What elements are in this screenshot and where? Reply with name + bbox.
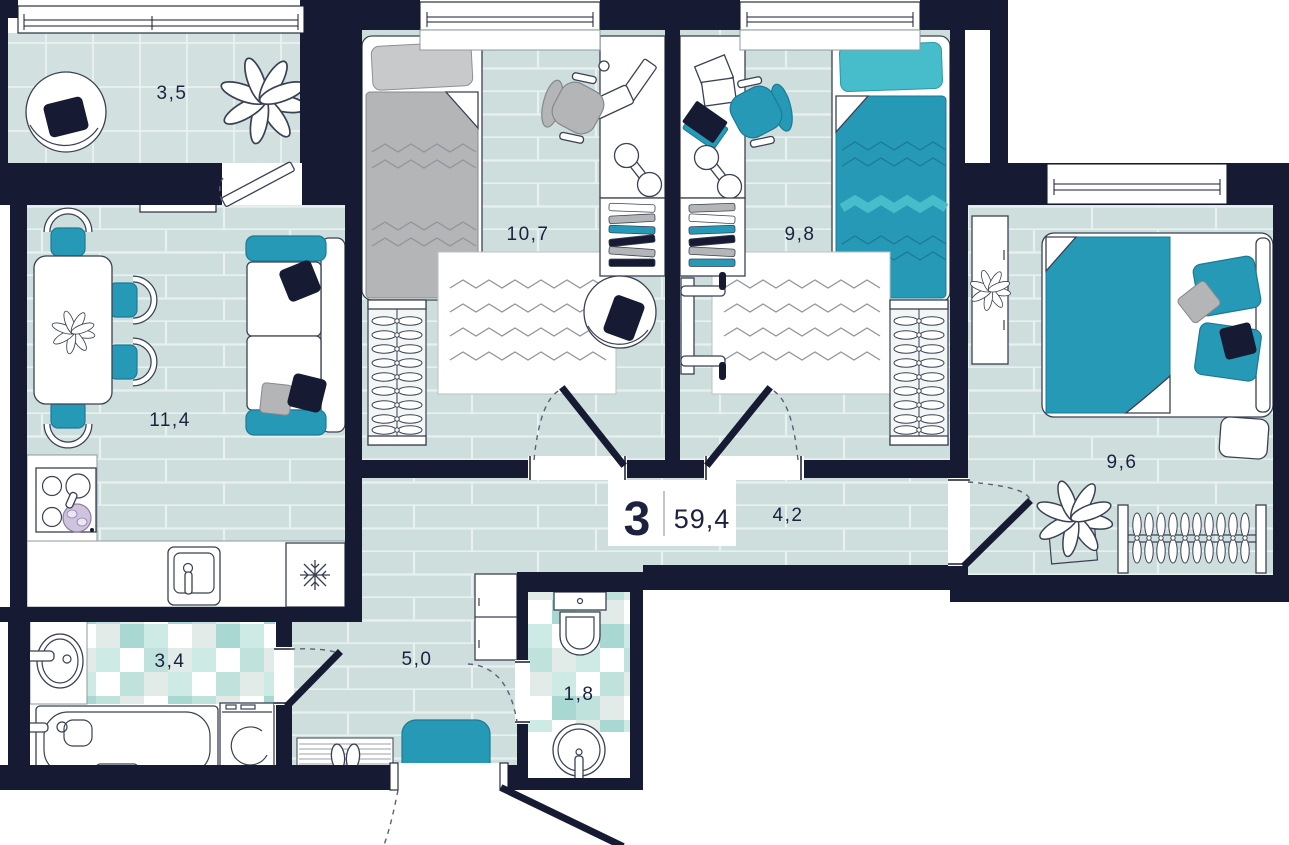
balcony-area-label: 3,5 — [157, 83, 188, 104]
floor-plan: 3 59,4 3,5 11,4 10,7 9,8 9,6 4,2 5,0 3,4… — [0, 0, 1289, 845]
double-bed-icon — [1042, 233, 1273, 417]
shoe-cabinet-icon — [475, 574, 517, 660]
bench-icon — [1219, 416, 1270, 459]
bookshelf-icon — [600, 198, 665, 276]
kitchen-sink-icon — [168, 547, 220, 605]
dresser-icon — [969, 216, 1011, 364]
bedroom-2-area-label: 9,8 — [785, 224, 816, 245]
total-area-label: 59,4 — [674, 504, 731, 534]
floor-plan-canvas: 3 59,4 3,5 11,4 10,7 9,8 9,6 4,2 5,0 3,4… — [0, 0, 1289, 845]
bedroom-3-area-label: 9,6 — [1107, 452, 1138, 473]
sofa-icon — [246, 236, 345, 435]
corridor-area-label: 4,2 — [773, 505, 804, 526]
bedroom-1-area-label: 10,7 — [507, 224, 550, 245]
wardrobe-rack-icon — [890, 300, 948, 445]
wardrobe-rack-icon — [368, 300, 426, 445]
bedroom-3-window — [1047, 164, 1227, 204]
wc-area-label: 1,8 — [564, 684, 595, 705]
bedroom-1-window — [420, 2, 600, 50]
balcony-door — [220, 162, 302, 207]
rooms-count-label: 3 — [624, 493, 651, 546]
living-area-label: 11,4 — [149, 410, 191, 431]
stove-icon — [36, 468, 96, 532]
desk-computer-icon — [590, 36, 665, 198]
hallway-area-label: 5,0 — [402, 649, 433, 670]
bathroom-area-label: 3,4 — [155, 651, 186, 672]
balcony-window — [18, 6, 304, 33]
bedroom-2-window — [740, 2, 920, 50]
round-chair-icon — [584, 276, 656, 348]
plan-info-box: 3 59,4 — [608, 480, 736, 546]
bookshelf-icon — [680, 198, 745, 276]
bathroom-sink-icon — [26, 620, 87, 704]
dining-table-icon — [34, 256, 112, 404]
lounge-chair-icon — [26, 72, 106, 152]
fridge-icon — [286, 543, 345, 607]
